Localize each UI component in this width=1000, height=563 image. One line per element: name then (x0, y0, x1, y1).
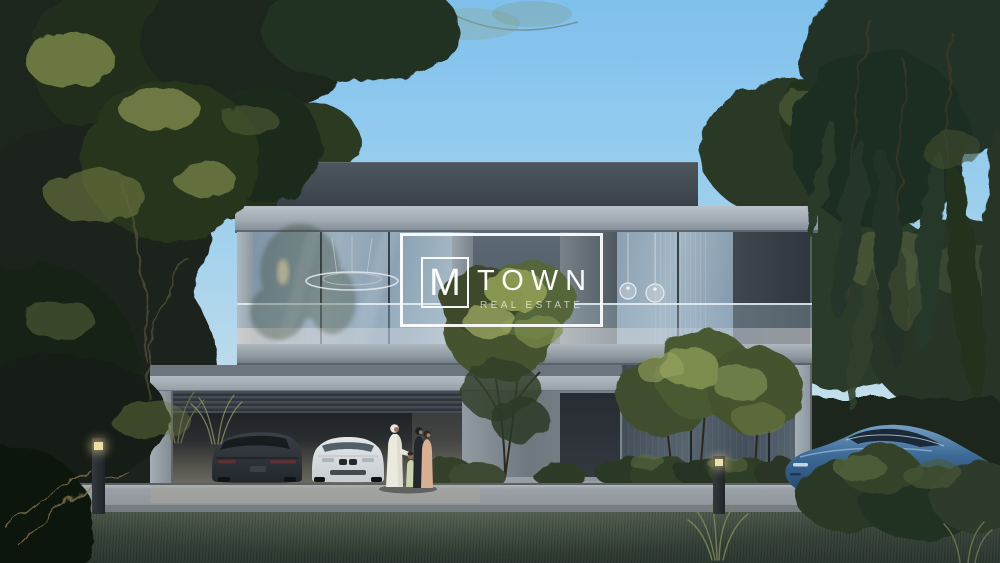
entry-court (462, 391, 622, 486)
logo-brand-text: TOWN (477, 265, 593, 298)
entry-door-panel (560, 393, 620, 481)
carport-apron (150, 485, 480, 503)
concrete-fascia (235, 206, 818, 233)
interior-light-line (626, 392, 756, 394)
canopy-louvers (173, 391, 462, 413)
watermark-logo: M TOWN REAL ESTATE (400, 233, 603, 327)
carport-pillar-left (150, 391, 173, 486)
window-mullion (690, 365, 692, 486)
floor-slab (237, 344, 812, 365)
roof-volume (277, 162, 698, 210)
logo-monogram-box: M (421, 257, 469, 308)
logo-monogram: M (429, 264, 461, 302)
bollard-light-left (92, 438, 105, 514)
carport-canopy (150, 376, 622, 391)
bollard-lamp (715, 459, 723, 466)
window-mullion (768, 365, 770, 486)
carport-interior (173, 413, 462, 486)
bollard-light-right (713, 456, 725, 514)
logo-tagline: REAL ESTATE (480, 300, 583, 311)
ground-glass-wall (622, 365, 795, 486)
lawn (0, 512, 1000, 563)
bollard-lamp (94, 442, 103, 450)
architectural-render: M TOWN REAL ESTATE (0, 0, 1000, 563)
corner-pillar-right (795, 365, 812, 486)
